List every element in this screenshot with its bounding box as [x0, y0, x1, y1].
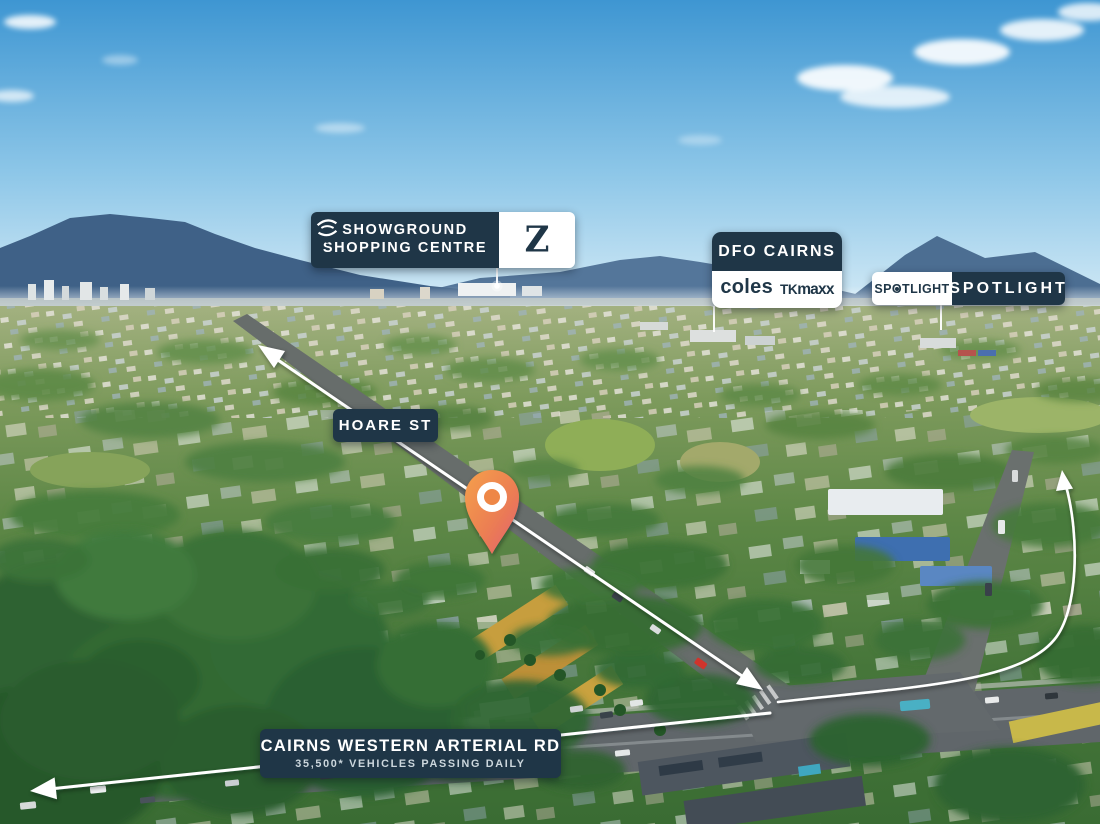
tkmaxx-tk: TK: [780, 282, 797, 297]
annotation-overlay: [0, 0, 1100, 824]
spotlight-logo-pre: SP: [874, 282, 891, 296]
arrowhead-down-right: [736, 667, 763, 690]
dfo-tenant-logos: coles TKmaxx: [712, 271, 842, 308]
showground-line2: SHOPPING CENTRE: [323, 240, 487, 258]
dfo-name: DFO CAIRNS: [712, 232, 842, 271]
tkmaxx-logo: TKmaxx: [780, 281, 834, 299]
showground-logo-panel: Z: [499, 212, 575, 268]
showground-line1: SHOWGROUND: [342, 222, 468, 240]
oz-circle-emblem-icon: [311, 212, 343, 244]
spotlight-dot-o-icon: O: [892, 282, 902, 296]
z-logo: Z: [525, 219, 550, 261]
spotlight-label: SPOTLIGHT SPOTLIGHT: [872, 272, 1065, 305]
dfo-cairns-label: DFO CAIRNS coles TKmaxx: [712, 232, 842, 308]
spotlight-name: SPOTLIGHT: [952, 272, 1065, 305]
location-pin-icon: [465, 470, 519, 554]
arterial-road-label: CAIRNS WESTERN ARTERIAL RD 35,500* VEHIC…: [260, 729, 561, 778]
side-road-curved-arrow: [778, 470, 1075, 702]
arrowhead-up: [1056, 470, 1073, 491]
showground-shopping-centre-label: SHOWGROUND SHOPPING CENTRE Z: [311, 212, 575, 268]
spotlight-logo: SPOTLIGHT: [872, 272, 952, 305]
arterial-traffic-stat: 35,500* VEHICLES PASSING DAILY: [295, 757, 525, 771]
coles-logo: coles: [720, 276, 773, 299]
arrowhead-up-left: [258, 345, 285, 368]
hoare-st-label: HOARE ST: [333, 409, 438, 442]
arterial-road-name: CAIRNS WESTERN ARTERIAL RD: [261, 736, 561, 757]
arrowhead-left: [30, 777, 57, 799]
aerial-marketing-image: SHOWGROUND SHOPPING CENTRE Z DFO CAIRNS …: [0, 0, 1100, 824]
tkmaxx-maxx: maxx: [797, 281, 833, 298]
spotlight-logo-post: TLIGHT: [902, 282, 950, 296]
